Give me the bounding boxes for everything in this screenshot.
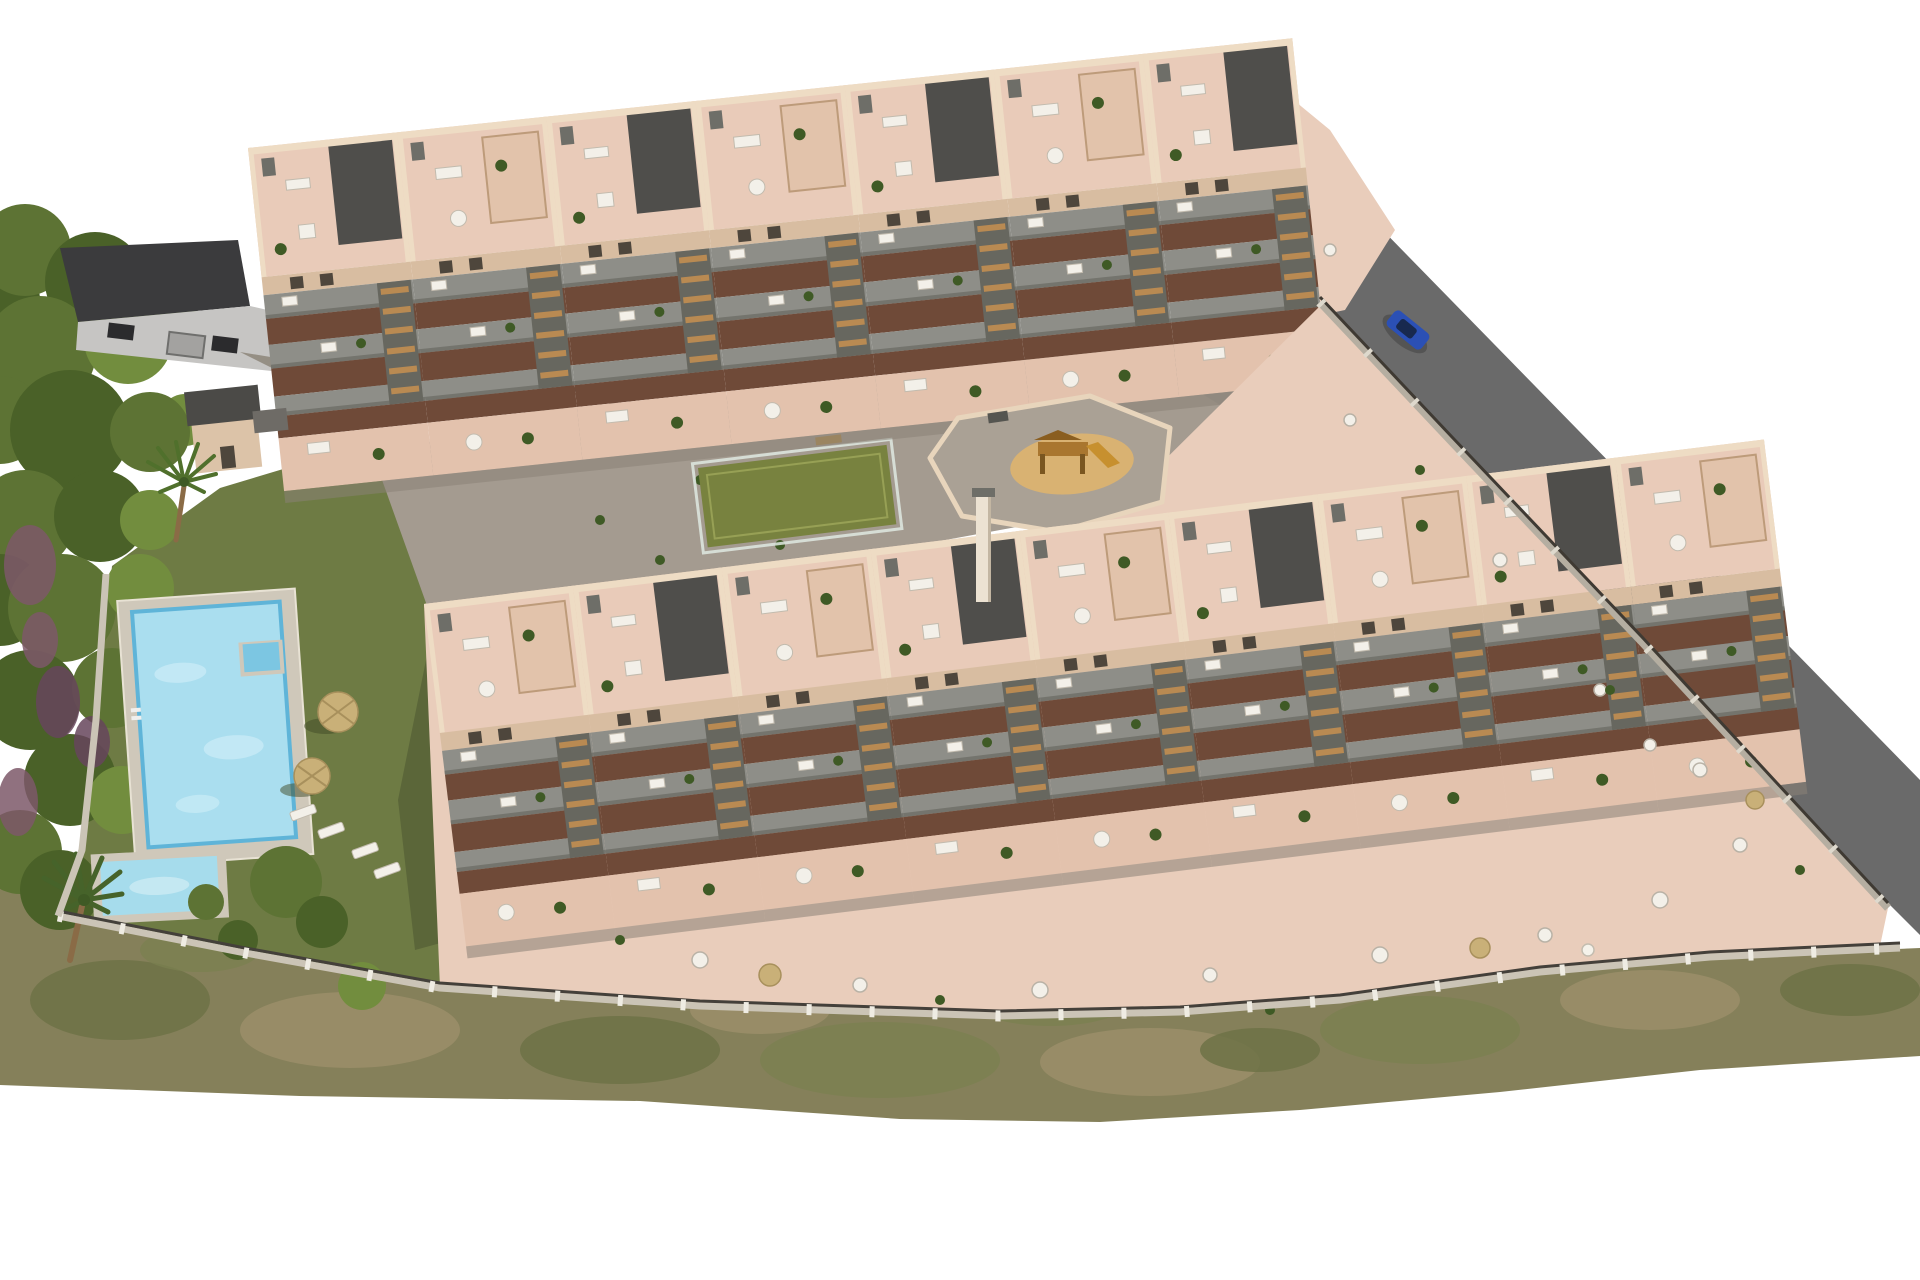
straw-parasol xyxy=(759,964,781,986)
pool-house-wing-roof xyxy=(252,408,288,433)
scrub-patch xyxy=(1320,996,1520,1064)
pool-steps xyxy=(243,642,281,672)
tree xyxy=(296,896,348,948)
swimming-pool xyxy=(117,589,313,867)
heather-shrub xyxy=(22,612,58,668)
scrub-patch xyxy=(760,1022,1000,1098)
tree xyxy=(188,884,224,920)
planter xyxy=(595,515,605,525)
playground xyxy=(930,396,1170,532)
furniture-dot xyxy=(1594,684,1606,696)
furniture-dot xyxy=(1372,947,1388,963)
furniture-dot xyxy=(692,952,708,968)
furniture-dot xyxy=(1538,928,1552,942)
pool-ladder xyxy=(131,708,141,713)
scrub-patch xyxy=(30,960,210,1040)
furniture-dot xyxy=(1203,968,1217,982)
neighbor-gate xyxy=(167,332,205,358)
planter xyxy=(935,995,945,1005)
scrub-patch xyxy=(1560,970,1740,1030)
architectural-render xyxy=(0,0,1920,1280)
play-post xyxy=(1040,454,1045,474)
chimney-shade xyxy=(988,494,991,602)
pool-water xyxy=(132,602,296,848)
garden-ornament xyxy=(1582,944,1594,956)
neighbor-window xyxy=(211,335,239,353)
furniture-dot xyxy=(1032,982,1048,998)
scrub-patch xyxy=(520,1016,720,1084)
furniture-dot xyxy=(1652,892,1668,908)
tree xyxy=(120,490,180,550)
planter xyxy=(1795,865,1805,875)
heather-shrub xyxy=(36,666,80,738)
straw-parasol xyxy=(1746,791,1764,809)
furniture-dot xyxy=(1733,838,1747,852)
scrub-patch xyxy=(1200,1028,1320,1072)
palm-crown xyxy=(78,894,90,906)
terrace-furniture xyxy=(1324,244,1336,256)
straw-parasol xyxy=(1470,938,1490,958)
furniture-dot xyxy=(1344,414,1356,426)
pool-house-door xyxy=(220,446,236,469)
play-platform xyxy=(1038,442,1088,456)
chimney-cap xyxy=(972,488,995,497)
planter xyxy=(1415,465,1425,475)
palm-crown xyxy=(179,477,189,487)
furniture-dot xyxy=(853,978,867,992)
planter xyxy=(1605,685,1615,695)
furniture-dot xyxy=(1644,739,1656,751)
planter xyxy=(655,555,665,565)
planter xyxy=(615,935,625,945)
pool-ladder xyxy=(131,716,141,721)
furniture-dot xyxy=(1693,763,1707,777)
furniture-dot xyxy=(1493,553,1507,567)
play-post xyxy=(1080,454,1085,474)
heather-shrub xyxy=(4,525,56,605)
scrub-patch xyxy=(1780,964,1920,1016)
neighbor-window xyxy=(107,322,135,340)
